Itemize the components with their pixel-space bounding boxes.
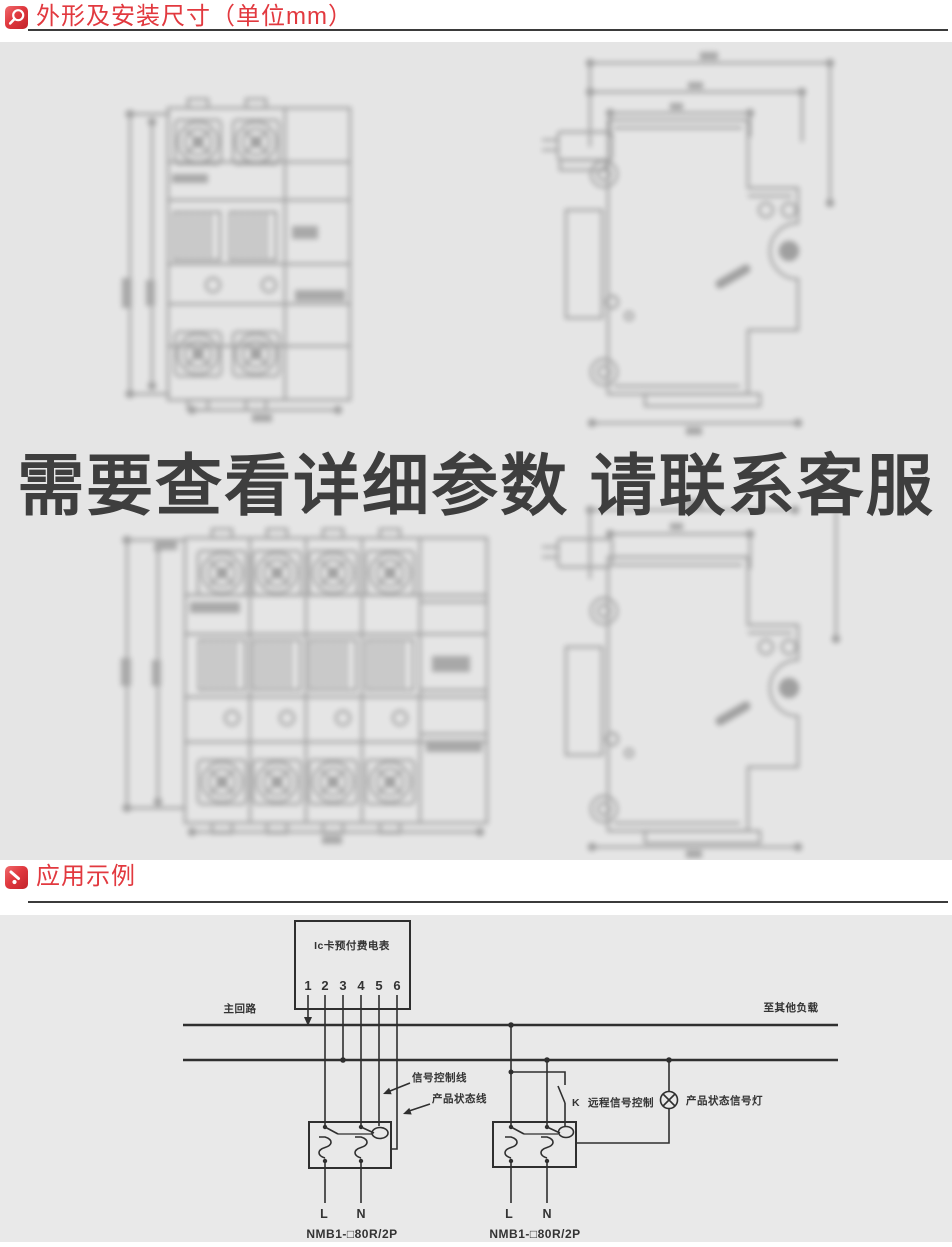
terminal-ticks <box>308 995 397 1009</box>
left-breaker-n: N <box>356 1207 365 1221</box>
terminal-1: 1 <box>304 978 311 993</box>
application-panel: Ic卡预付费电表 1 2 3 4 5 6 主回路 至其他负载 信号控制线 产品状… <box>0 915 952 1242</box>
remote-signal-label: 远程信号控制 <box>588 1096 654 1109</box>
dimensions-panel: 需要查看详细参数 请联系客服 <box>0 42 952 860</box>
arrowhead <box>383 1088 392 1094</box>
right-branch-wires <box>508 1022 565 1126</box>
main-circuit-label: 主回路 <box>224 1002 257 1015</box>
section-header-dimensions: 外形及安装尺寸（单位mm） <box>5 4 353 30</box>
meter-box <box>295 921 410 1009</box>
right-breaker-n: N <box>542 1207 551 1221</box>
wiring-diagram: Ic卡预付费电表 1 2 3 4 5 6 主回路 至其他负载 信号控制线 产品状… <box>0 915 952 1242</box>
signal-control-leader <box>390 1083 410 1091</box>
terminal-2: 2 <box>321 978 328 993</box>
left-breaker-model: NMB1-□80R/2P <box>306 1227 397 1241</box>
terminal-3: 3 <box>339 978 346 993</box>
right-breaker-l: L <box>505 1207 513 1221</box>
terminal-5: 5 <box>375 978 382 993</box>
divider <box>28 901 948 903</box>
meter-label: Ic卡预付费电表 <box>314 939 390 952</box>
status-lamp-label: 产品状态信号灯 <box>686 1094 763 1107</box>
front-view-4p <box>121 529 487 844</box>
front-view-2p <box>122 99 350 422</box>
left-breaker <box>309 1122 391 1203</box>
k-switch-label: K <box>572 1097 580 1109</box>
section-header-application: 应用示例 <box>5 864 136 890</box>
pointer-icon <box>5 866 28 889</box>
side-view-bottom <box>542 499 839 858</box>
product-status-label: 产品状态线 <box>432 1092 487 1105</box>
right-breaker-model: NMB1-□80R/2P <box>489 1227 580 1241</box>
section-title-dimensions: 外形及安装尺寸（单位mm） <box>36 4 353 30</box>
other-loads-label: 至其他负载 <box>764 1001 819 1014</box>
right-breaker <box>493 1122 576 1203</box>
product-status-leader <box>409 1104 430 1111</box>
signal-control-label: 信号控制线 <box>412 1071 467 1084</box>
arrowhead <box>403 1108 412 1115</box>
section-title-application: 应用示例 <box>36 864 136 890</box>
left-breaker-l: L <box>320 1207 328 1221</box>
side-view-top <box>542 52 833 435</box>
overlay-notice: 需要查看详细参数 请联系客服 <box>17 432 935 529</box>
terminal-4: 4 <box>357 978 365 993</box>
magnifier-icon <box>5 6 28 29</box>
divider <box>28 29 948 31</box>
terminal-6: 6 <box>393 978 400 993</box>
